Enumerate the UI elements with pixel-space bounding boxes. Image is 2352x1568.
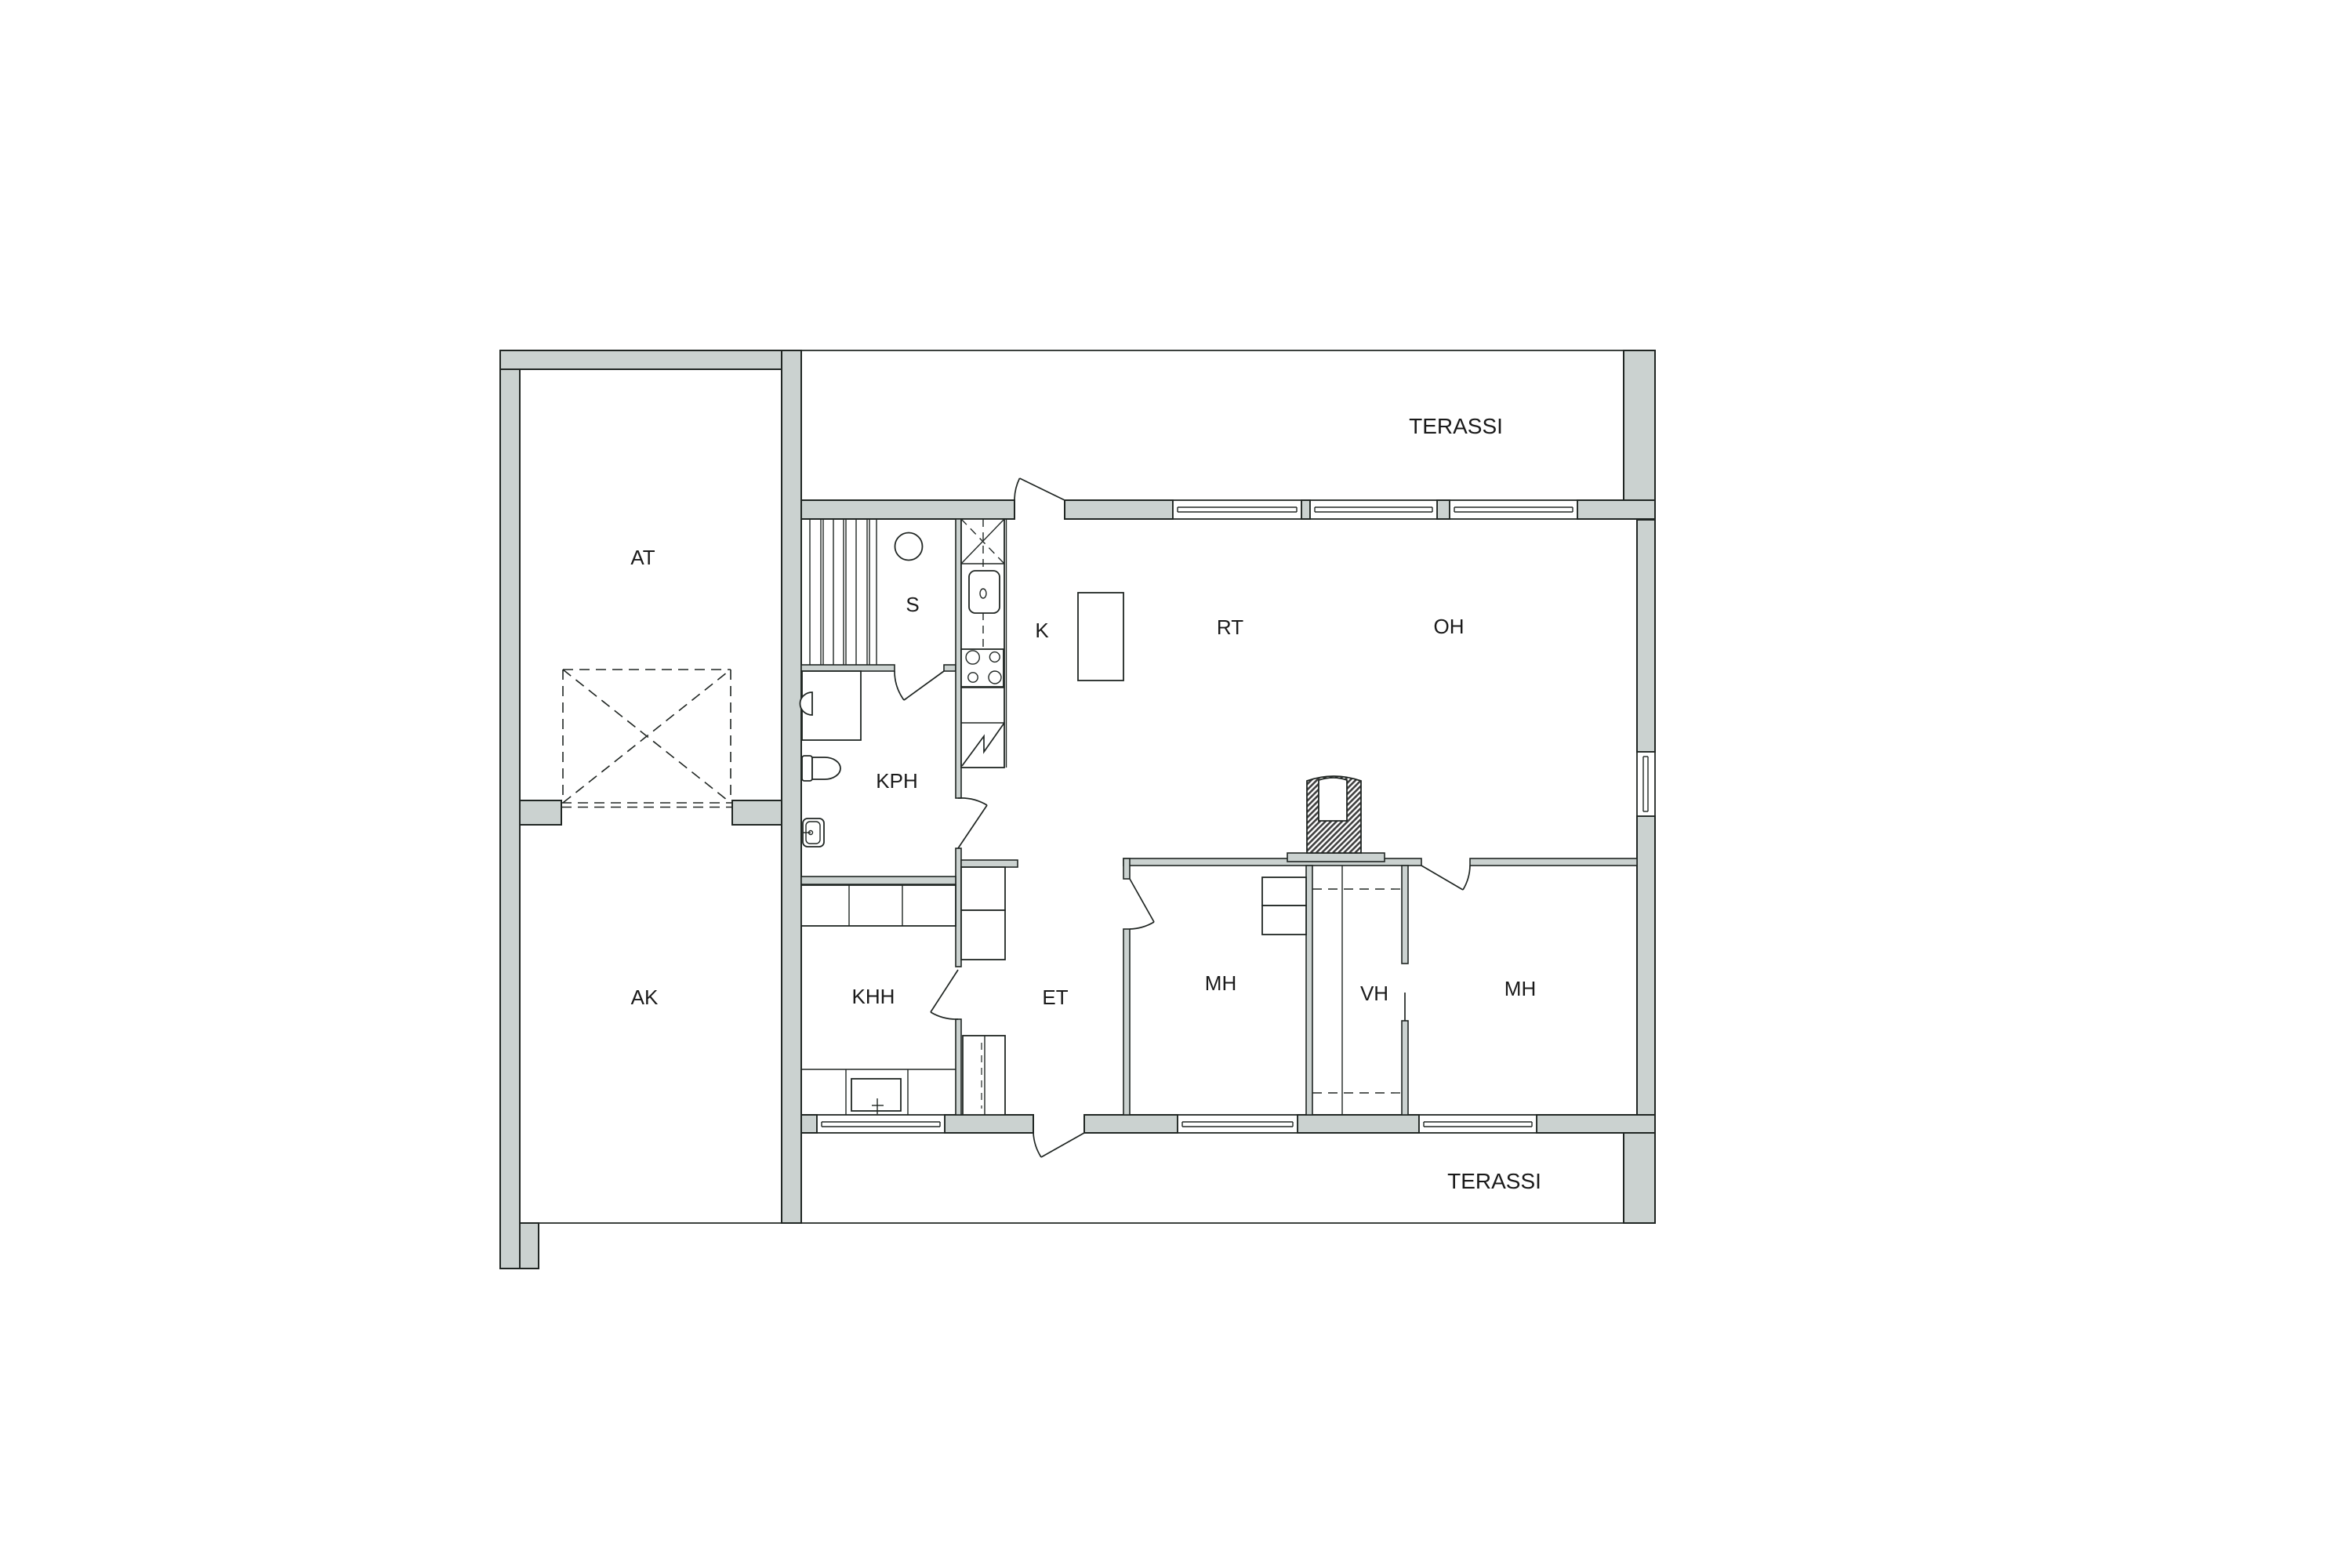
svg-text:MH: MH [1205, 971, 1236, 995]
svg-text:AK: AK [631, 985, 659, 1009]
svg-text:VH: VH [1360, 982, 1388, 1005]
svg-text:KHH: KHH [852, 985, 895, 1008]
svg-text:ET: ET [1042, 985, 1068, 1009]
svg-text:S: S [906, 593, 919, 616]
svg-text:K: K [1035, 619, 1049, 642]
svg-text:AT: AT [630, 546, 655, 569]
svg-text:TERASSI: TERASSI [1447, 1169, 1541, 1193]
svg-text:TERASSI: TERASSI [1409, 414, 1503, 438]
svg-text:KPH: KPH [876, 769, 917, 793]
svg-text:RT: RT [1217, 615, 1243, 639]
svg-text:OH: OH [1434, 615, 1465, 638]
svg-text:MH: MH [1504, 977, 1536, 1000]
